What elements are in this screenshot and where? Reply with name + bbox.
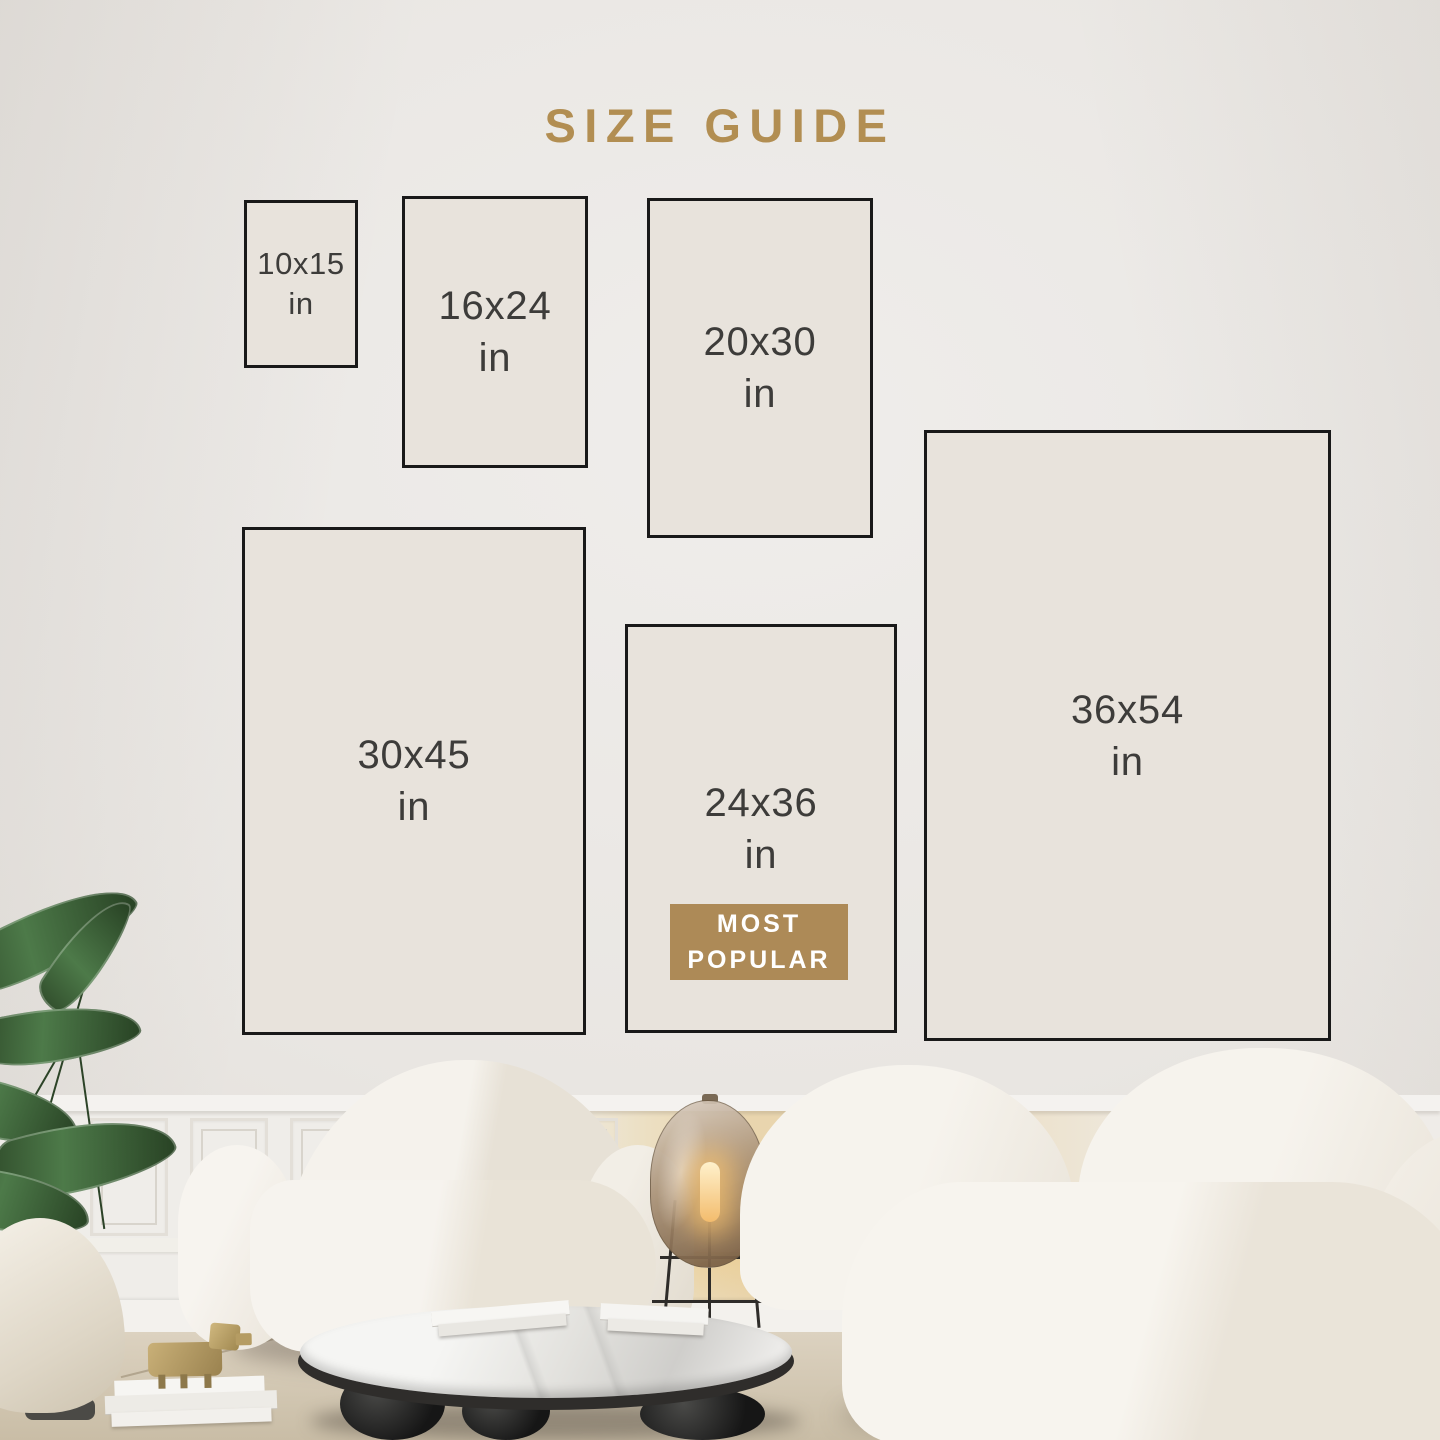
size-box-20x30: 20x30 in — [647, 198, 873, 538]
size-label: 30x45 — [358, 729, 471, 781]
size-unit: in — [1111, 736, 1144, 788]
figurine-snout — [236, 1333, 252, 1345]
size-label: 24x36 — [705, 777, 818, 829]
size-label: 36x54 — [1071, 684, 1184, 736]
size-label: 16x24 — [439, 280, 552, 332]
size-box-30x45: 30x45 in — [242, 527, 586, 1035]
figurine-leg — [158, 1375, 165, 1389]
most-popular-badge: MOST POPULAR — [670, 904, 848, 980]
wooden-dog-figurine — [147, 1323, 258, 1391]
sofa-seat — [842, 1182, 1440, 1440]
badge-line: POPULAR — [687, 942, 830, 978]
size-box-36x54: 36x54 in — [924, 430, 1331, 1041]
size-unit: in — [744, 368, 777, 420]
badge-line: MOST — [717, 906, 801, 942]
figurine-leg — [204, 1374, 211, 1388]
size-unit: in — [479, 332, 512, 384]
table-book-stack — [599, 1303, 710, 1339]
size-box-16x24: 16x24 in — [402, 196, 588, 468]
size-label: 10x15 — [257, 244, 345, 284]
figurine-leg — [180, 1374, 187, 1388]
lamp-crossbar — [652, 1300, 770, 1303]
size-box-24x36: 24x36 in MOST POPULAR — [625, 624, 897, 1033]
size-label: 20x30 — [704, 316, 817, 368]
size-unit: in — [745, 829, 778, 881]
size-guide-image: SIZE GUIDE 10x15 in 16x24 in 20x30 in 30… — [0, 0, 1440, 1440]
lamp-bulb — [700, 1162, 720, 1222]
size-box-10x15: 10x15 in — [244, 200, 358, 368]
size-unit: in — [398, 781, 431, 833]
page-title: SIZE GUIDE — [0, 98, 1440, 153]
size-unit: in — [288, 284, 313, 324]
